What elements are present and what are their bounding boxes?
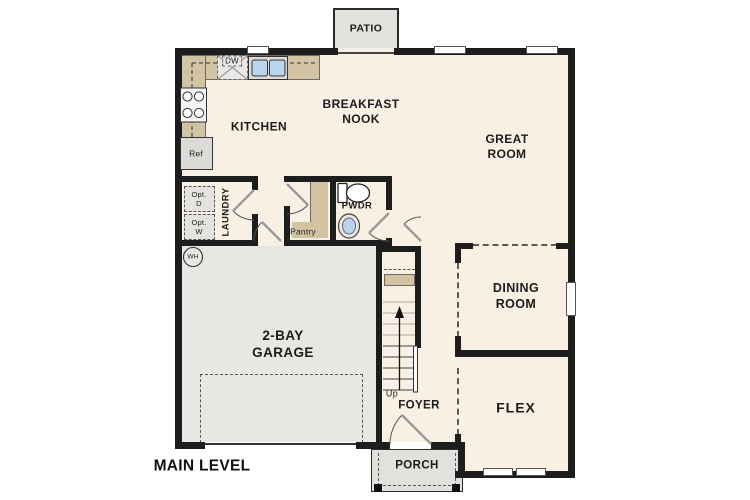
flex-floor-extension bbox=[462, 442, 568, 471]
porch-post bbox=[374, 484, 382, 492]
wall bbox=[376, 246, 382, 443]
floor-plan: PATIO KITCHEN BREAKFAST NOOK GREAT ROOM … bbox=[0, 0, 750, 500]
room-label-breakfast-nook: BREAKFAST NOOK bbox=[323, 97, 400, 127]
room-label-patio: PATIO bbox=[350, 22, 383, 37]
label-stairs-up: Up bbox=[386, 387, 398, 402]
wall bbox=[284, 176, 392, 182]
wall bbox=[330, 176, 336, 246]
wall bbox=[455, 350, 575, 357]
label-dishwasher: DW bbox=[222, 56, 242, 67]
patio-threshold bbox=[338, 52, 394, 54]
porch-post bbox=[452, 484, 460, 492]
room-label-garage: 2-BAY GARAGE bbox=[252, 327, 314, 361]
wall bbox=[175, 240, 258, 246]
dining-opening-dashed-top bbox=[473, 244, 557, 246]
label-water-heater: WH bbox=[187, 253, 198, 262]
window bbox=[483, 468, 513, 476]
wall bbox=[175, 176, 258, 182]
room-label-foyer: FOYER bbox=[398, 399, 440, 414]
room-label-pantry: Pantry bbox=[290, 228, 316, 237]
room-label-porch: PORCH bbox=[395, 459, 439, 474]
dining-opening-dashed-left bbox=[457, 263, 459, 337]
window bbox=[526, 46, 558, 54]
wall bbox=[175, 48, 182, 448]
wall bbox=[252, 182, 258, 190]
room-label-dining: DINING ROOM bbox=[493, 280, 539, 312]
window bbox=[516, 468, 546, 476]
room-label-kitchen: KITCHEN bbox=[231, 120, 287, 135]
wall bbox=[386, 176, 392, 210]
window bbox=[566, 282, 576, 316]
garage-door-swing-dashed bbox=[200, 374, 363, 443]
garage-door-line bbox=[205, 443, 356, 445]
label-refrigerator: Ref bbox=[189, 150, 203, 159]
wall bbox=[455, 471, 575, 478]
label-optional-dryer: Opt. D bbox=[192, 190, 207, 208]
flex-opening-dashed-left bbox=[457, 368, 459, 435]
wall bbox=[356, 442, 376, 449]
wall bbox=[415, 246, 421, 348]
kitchen-counter-left bbox=[181, 55, 206, 138]
room-label-flex: FLEX bbox=[496, 401, 536, 416]
room-label-great-room: GREAT ROOM bbox=[485, 132, 528, 162]
room-label-powder: PWDR bbox=[342, 199, 373, 214]
label-optional-washer: Opt. W bbox=[192, 218, 207, 236]
wall bbox=[568, 48, 575, 478]
room-label-laundry: LAUNDRY bbox=[219, 188, 234, 237]
page-title: MAIN LEVEL bbox=[154, 459, 251, 474]
wall bbox=[455, 243, 461, 263]
wall bbox=[556, 243, 575, 249]
window bbox=[434, 46, 466, 54]
wall bbox=[175, 442, 205, 449]
coat-closet-shelf bbox=[384, 274, 415, 286]
window bbox=[247, 46, 269, 54]
closet-dashed-line bbox=[384, 269, 415, 270]
